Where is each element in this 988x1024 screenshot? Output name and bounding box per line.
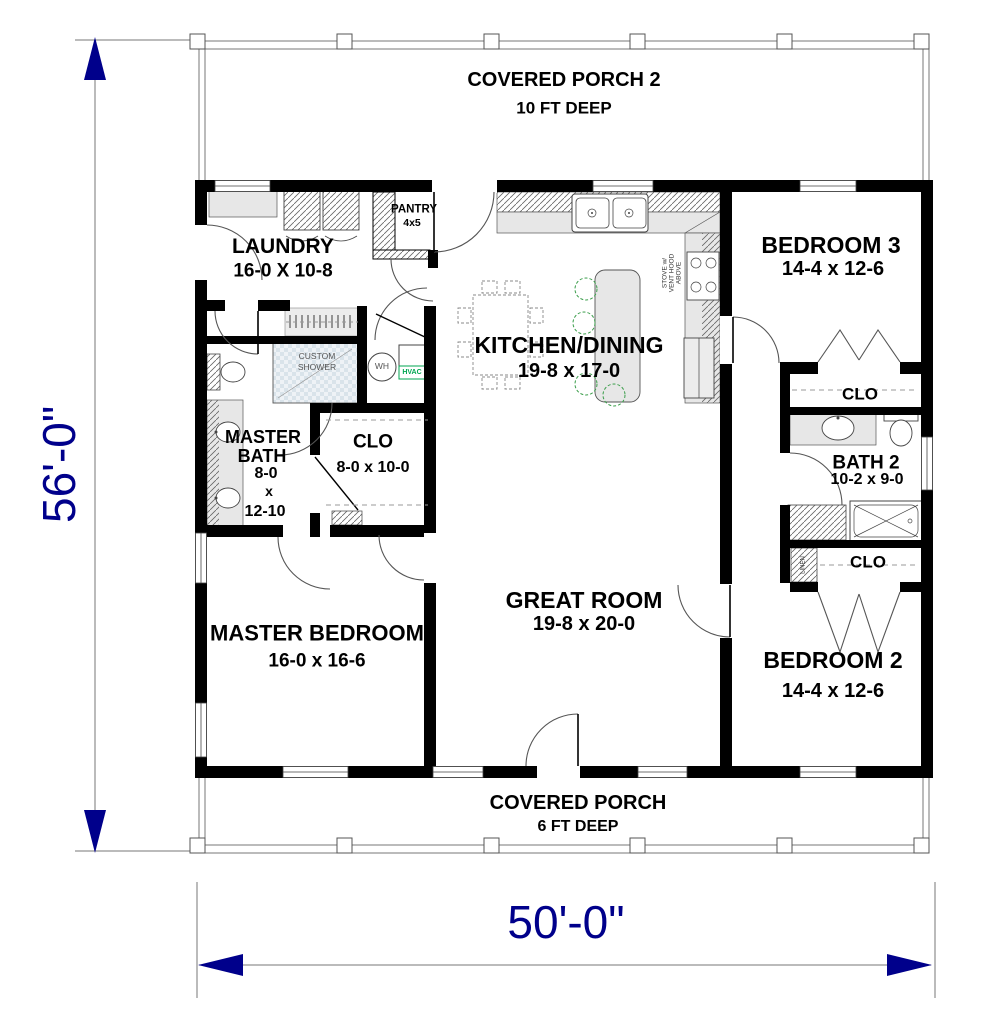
room-master-bath-line4: x — [265, 484, 273, 500]
hvac-label: HVAC — [402, 369, 421, 377]
stove-note-line3: ABOVE — [676, 254, 683, 293]
room-laundry-name: LAUNDRY — [232, 235, 334, 259]
room-bedroom3-dims: 14-4 x 12-6 — [782, 258, 884, 280]
porch-top-name: COVERED PORCH 2 — [467, 69, 660, 91]
room-master-bath-line5: 12-10 — [245, 503, 286, 521]
shower-label-line2: SHOWER — [298, 363, 336, 373]
room-master-bedroom-name: MASTER BEDROOM — [210, 622, 424, 647]
stove-note: STOVE w/ VENT HOOD ABOVE — [661, 254, 682, 293]
master-closet-dims: 8-0 x 10-0 — [337, 459, 410, 477]
room-laundry-dims: 16-0 X 10-8 — [233, 260, 332, 281]
room-bedroom2-dims: 14-4 x 12-6 — [782, 680, 884, 702]
porch-top-depth: 10 FT DEEP — [516, 98, 611, 117]
master-closet-name: CLO — [353, 431, 393, 452]
room-pantry-name: PANTRY — [391, 204, 437, 217]
floor-plan: 56'-0" 50'-0" COVERED PORCH 2 10 FT DEEP… — [0, 0, 988, 1024]
laundry-fixtures — [209, 190, 359, 241]
porch-bottom-name: COVERED PORCH — [490, 792, 667, 814]
room-bedroom3-name: BEDROOM 3 — [761, 233, 900, 259]
stove-note-line2: VENT HOOD — [668, 254, 675, 293]
porch-bottom-depth: 6 FT DEEP — [538, 818, 619, 836]
room-master-bedroom-dims: 16-0 x 16-6 — [268, 650, 365, 671]
room-kitchen-name: KITCHEN/DINING — [474, 333, 663, 359]
bath2-fixtures — [332, 409, 922, 582]
room-bedroom2-name: BEDROOM 2 — [763, 648, 902, 674]
shower-label-line1: CUSTOM — [299, 352, 336, 362]
stove-note-line1: STOVE w/ — [661, 254, 668, 293]
width-dimension-label: 50'-0" — [507, 895, 624, 949]
room-kitchen-dims: 19-8 x 17-0 — [518, 360, 620, 382]
room-pantry-dims: 4x5 — [403, 218, 421, 230]
porch-outlines — [197, 41, 929, 853]
room-master-bath-line1: MASTER — [225, 427, 301, 447]
fridge-icon — [684, 338, 714, 398]
room-great-room-name: GREAT ROOM — [506, 588, 663, 614]
linen-label: LINEN — [801, 556, 808, 574]
water-heater-label: WH — [375, 362, 389, 372]
bedroom3-closet-label: CLO — [842, 384, 878, 403]
height-dimension-label: 56'-0" — [32, 406, 86, 523]
room-bath2-dims: 10-2 x 9-0 — [831, 471, 904, 489]
room-master-bath-line2: BATH — [238, 446, 287, 466]
room-great-room-dims: 19-8 x 20-0 — [533, 613, 635, 635]
stove-icon — [687, 252, 719, 300]
room-master-bath-line3: 8-0 — [254, 465, 277, 483]
bedroom2-closet-label: CLO — [850, 552, 886, 571]
floor-plan-drawing — [0, 0, 988, 1024]
